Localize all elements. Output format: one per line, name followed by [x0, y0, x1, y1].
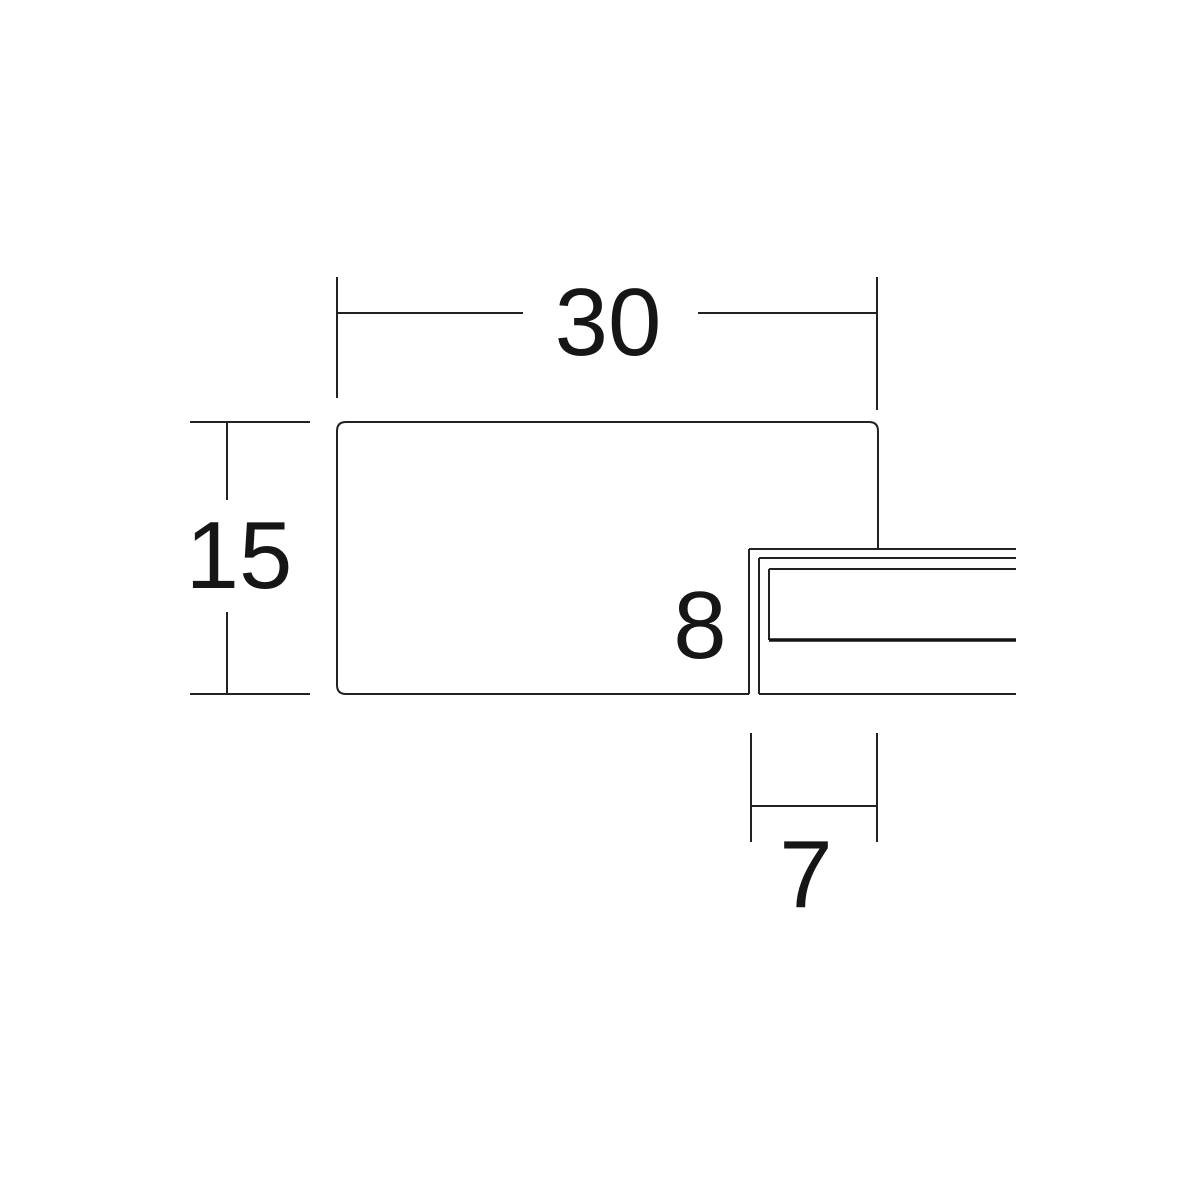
- dim-height-value: 15: [186, 502, 293, 609]
- dim-rabbet-depth-value: 7: [779, 821, 832, 928]
- dim-width-value: 30: [555, 269, 662, 376]
- moulding-profile-diagram: 30 15 8 7: [0, 0, 1200, 1200]
- drawing-canvas: 30 15 8 7: [0, 0, 1200, 1200]
- dim-rabbet-height-value: 8: [673, 572, 726, 679]
